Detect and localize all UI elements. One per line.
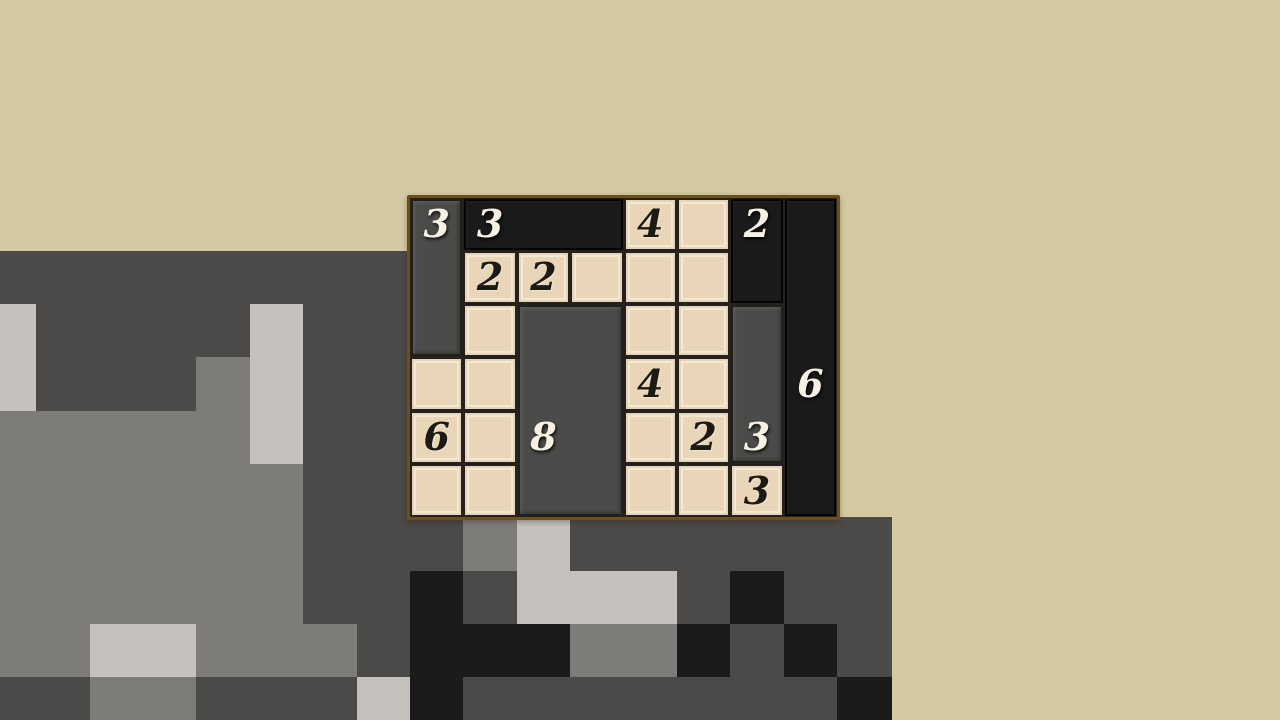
- background-tile: [0, 517, 37, 571]
- background-tile: [36, 304, 90, 358]
- background-tile: [730, 677, 784, 720]
- background-tile: [303, 517, 357, 571]
- background-tile: [90, 571, 144, 625]
- background-tile: [36, 677, 90, 720]
- background-tile: [410, 571, 464, 625]
- puzzle-cell[interactable]: [626, 413, 675, 462]
- background-tile: [517, 517, 571, 571]
- background-tile: [410, 517, 464, 571]
- background-tile: [143, 624, 197, 678]
- background-tile: [624, 517, 678, 571]
- background-tile: [143, 517, 197, 571]
- puzzle-cell[interactable]: [465, 466, 514, 515]
- background-tile: [730, 517, 784, 571]
- background-tile: [196, 571, 250, 625]
- background-tile: [250, 304, 304, 358]
- placed-piece[interactable]: [411, 199, 462, 357]
- background-tile: [143, 304, 197, 358]
- puzzle-cell[interactable]: [679, 306, 728, 355]
- puzzle-cell[interactable]: [626, 359, 675, 408]
- puzzle-cell[interactable]: [412, 413, 461, 462]
- background-tile: [303, 304, 357, 358]
- background-tile: [90, 357, 144, 411]
- background-tile: [143, 571, 197, 625]
- background-tile: [357, 517, 411, 571]
- background-tile: [196, 251, 250, 305]
- puzzle-cell[interactable]: [679, 413, 728, 462]
- background-tile: [36, 571, 90, 625]
- background-tile: [90, 304, 144, 358]
- background-tile: [624, 677, 678, 720]
- background-tile: [463, 624, 517, 678]
- background-tile: [250, 357, 304, 411]
- background-tile: [730, 624, 784, 678]
- background-tile: [196, 357, 250, 411]
- puzzle-cell[interactable]: [679, 466, 728, 515]
- background-tile: [0, 677, 37, 720]
- background-tile: [357, 411, 411, 465]
- background-tile: [0, 464, 37, 518]
- puzzle-cell[interactable]: [626, 253, 675, 302]
- background-tile: [90, 624, 144, 678]
- puzzle-cell[interactable]: [465, 253, 514, 302]
- background-tile: [143, 464, 197, 518]
- background-tile: [250, 251, 304, 305]
- background-tile: [0, 251, 37, 305]
- background-tile: [250, 677, 304, 720]
- background-tile: [303, 571, 357, 625]
- background-tile: [90, 464, 144, 518]
- background-tile: [250, 571, 304, 625]
- background-tile: [196, 464, 250, 518]
- background-tile: [303, 411, 357, 465]
- background-tile: [357, 464, 411, 518]
- background-tile: [143, 357, 197, 411]
- puzzle-cell[interactable]: [465, 413, 514, 462]
- background-tile: [410, 677, 464, 720]
- puzzle-cell[interactable]: [412, 466, 461, 515]
- background-tile: [303, 677, 357, 720]
- background-tile: [784, 571, 838, 625]
- background-tile: [357, 677, 411, 720]
- background-tile: [357, 304, 411, 358]
- background-tile: [143, 677, 197, 720]
- background-tile: [36, 464, 90, 518]
- background-tile: [837, 624, 891, 678]
- background-tile: [36, 624, 90, 678]
- background-tile: [357, 571, 411, 625]
- background-tile: [784, 624, 838, 678]
- background-tile: [357, 357, 411, 411]
- background-tile: [677, 677, 731, 720]
- background-tile: [784, 677, 838, 720]
- background-tile: [0, 571, 37, 625]
- placed-piece[interactable]: [785, 199, 836, 517]
- background-tile: [250, 517, 304, 571]
- background-tile: [0, 624, 37, 678]
- background-tile: [90, 677, 144, 720]
- background-tile: [463, 517, 517, 571]
- puzzle-cell[interactable]: [626, 306, 675, 355]
- background-tile: [303, 624, 357, 678]
- background-tile: [90, 251, 144, 305]
- background-tile: [90, 411, 144, 465]
- background-tile: [837, 677, 891, 720]
- background-tile: [196, 411, 250, 465]
- background-tile: [303, 251, 357, 305]
- background-tile: [303, 464, 357, 518]
- background-tile: [463, 677, 517, 720]
- background-tile: [357, 624, 411, 678]
- background-tile: [517, 624, 571, 678]
- placed-piece[interactable]: [731, 305, 782, 463]
- background-tile: [196, 304, 250, 358]
- puzzle-cell[interactable]: [465, 359, 514, 408]
- background-tile: [517, 571, 571, 625]
- puzzle-cell[interactable]: [626, 200, 675, 249]
- background-tile: [143, 411, 197, 465]
- background-tile: [624, 624, 678, 678]
- background-tile: [463, 571, 517, 625]
- puzzle-cell[interactable]: [572, 253, 621, 302]
- puzzle-cell[interactable]: [519, 253, 568, 302]
- background-tile: [143, 251, 197, 305]
- background-tile: [730, 571, 784, 625]
- background-tile: [90, 517, 144, 571]
- background-tile: [250, 464, 304, 518]
- background-tile: [196, 517, 250, 571]
- background-tile: [196, 677, 250, 720]
- background-tile: [837, 517, 891, 571]
- background-tile: [677, 517, 731, 571]
- background-tile: [570, 517, 624, 571]
- puzzle-cell[interactable]: [679, 359, 728, 408]
- puzzle-board: 3326834224623: [407, 195, 840, 521]
- puzzle-cell[interactable]: [412, 359, 461, 408]
- placed-piece[interactable]: [518, 305, 623, 516]
- background-tile: [570, 571, 624, 625]
- background-tile: [677, 624, 731, 678]
- background-tile: [303, 357, 357, 411]
- background-tile: [196, 624, 250, 678]
- background-tile: [570, 624, 624, 678]
- placed-piece[interactable]: [464, 199, 622, 250]
- background-tile: [250, 411, 304, 465]
- placed-piece[interactable]: [731, 199, 782, 304]
- background-tile: [837, 571, 891, 625]
- puzzle-cell[interactable]: [679, 253, 728, 302]
- background-tile: [0, 411, 37, 465]
- background-tile: [36, 251, 90, 305]
- background-tile: [517, 677, 571, 720]
- background-tile: [36, 357, 90, 411]
- background-tile: [624, 571, 678, 625]
- puzzle-cell[interactable]: [465, 306, 514, 355]
- puzzle-cell[interactable]: [679, 200, 728, 249]
- background-tile: [0, 357, 37, 411]
- background-tile: [250, 624, 304, 678]
- background-tile: [677, 571, 731, 625]
- puzzle-cell[interactable]: [732, 466, 781, 515]
- background-tile: [0, 304, 37, 358]
- puzzle-cell[interactable]: [626, 466, 675, 515]
- background-tile: [36, 517, 90, 571]
- background-tile: [357, 251, 411, 305]
- background-tile: [410, 624, 464, 678]
- game-screen: 3326834224623: [0, 0, 1280, 720]
- background-tile: [570, 677, 624, 720]
- background-tile: [784, 517, 838, 571]
- background-tile: [36, 411, 90, 465]
